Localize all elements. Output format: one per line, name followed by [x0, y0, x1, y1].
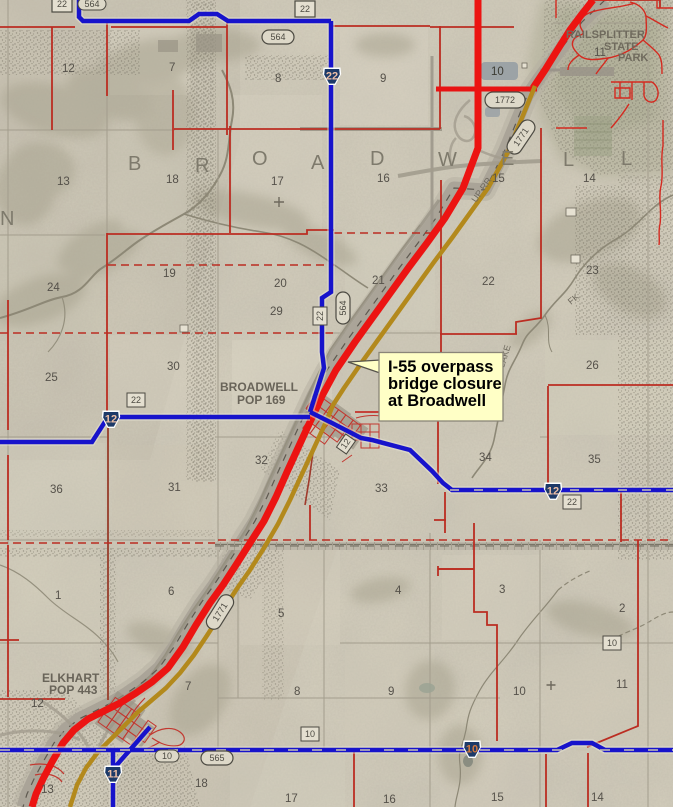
svg-text:4: 4 — [395, 585, 402, 597]
svg-text:19: 19 — [163, 268, 176, 280]
svg-text:23: 23 — [586, 265, 599, 277]
svg-text:36: 36 — [50, 484, 63, 496]
svg-text:11: 11 — [616, 679, 628, 691]
svg-text:22: 22 — [567, 497, 577, 507]
svg-text:17: 17 — [285, 793, 298, 805]
svg-text:RAILSPLITTER: RAILSPLITTER — [566, 29, 645, 41]
svg-text:B: B — [128, 153, 141, 175]
svg-text:17: 17 — [271, 176, 284, 188]
svg-text:16: 16 — [383, 794, 396, 806]
svg-text:564: 564 — [270, 32, 285, 42]
svg-text:13: 13 — [57, 176, 70, 188]
svg-text:18: 18 — [195, 778, 208, 790]
svg-text:10: 10 — [305, 729, 315, 739]
svg-text:PARK: PARK — [618, 52, 648, 64]
svg-text:7: 7 — [185, 681, 191, 693]
svg-text:14: 14 — [591, 792, 604, 804]
svg-text:3: 3 — [499, 584, 505, 596]
svg-text:13: 13 — [41, 784, 54, 796]
svg-text:10: 10 — [466, 744, 478, 756]
svg-text:8: 8 — [294, 686, 300, 698]
svg-text:18: 18 — [166, 174, 179, 186]
svg-text:9: 9 — [388, 686, 394, 698]
svg-text:564: 564 — [84, 0, 99, 9]
svg-text:8: 8 — [275, 73, 281, 85]
svg-text:564: 564 — [338, 300, 348, 315]
svg-text:35: 35 — [588, 454, 601, 466]
svg-text:W: W — [438, 149, 457, 171]
svg-text:10: 10 — [491, 66, 504, 78]
svg-text:I-55 overpass: I-55 overpass — [388, 358, 493, 376]
svg-text:R: R — [195, 155, 209, 177]
svg-text:12: 12 — [62, 63, 75, 75]
svg-text:29: 29 — [270, 306, 283, 318]
svg-text:15: 15 — [492, 173, 505, 185]
svg-text:30: 30 — [167, 361, 180, 373]
svg-text:O: O — [252, 148, 268, 170]
svg-text:L: L — [621, 148, 632, 170]
svg-text:1772: 1772 — [495, 95, 515, 105]
svg-text:21: 21 — [372, 275, 385, 287]
svg-text:22: 22 — [131, 395, 141, 405]
svg-text:25: 25 — [45, 372, 58, 384]
svg-text:12: 12 — [547, 486, 559, 498]
svg-text:22: 22 — [482, 276, 495, 288]
svg-text:11: 11 — [107, 769, 119, 781]
svg-text:22: 22 — [326, 71, 338, 83]
svg-text:12: 12 — [31, 698, 44, 710]
svg-text:10: 10 — [162, 751, 172, 761]
svg-text:POP 169: POP 169 — [237, 393, 286, 407]
svg-text:10: 10 — [607, 638, 617, 648]
svg-text:34: 34 — [479, 452, 492, 464]
svg-text:565: 565 — [209, 753, 224, 763]
svg-text:22: 22 — [315, 311, 325, 321]
svg-text:22: 22 — [300, 4, 310, 14]
svg-text:E: E — [501, 148, 514, 170]
svg-text:5: 5 — [278, 608, 284, 620]
svg-text:14: 14 — [583, 173, 596, 185]
svg-text:2: 2 — [619, 603, 625, 615]
svg-text:31: 31 — [168, 482, 181, 494]
svg-text:N: N — [0, 208, 14, 230]
svg-text:6: 6 — [168, 586, 174, 598]
svg-text:33: 33 — [375, 483, 388, 495]
svg-text:32: 32 — [255, 455, 268, 467]
svg-text:16: 16 — [377, 173, 390, 185]
svg-text:15: 15 — [491, 792, 504, 804]
svg-text:at Broadwell: at Broadwell — [388, 392, 486, 410]
svg-text:26: 26 — [586, 360, 599, 372]
svg-text:10: 10 — [513, 686, 526, 698]
svg-text:22: 22 — [57, 0, 67, 9]
svg-text:12: 12 — [105, 414, 117, 426]
svg-text:BROADWELL: BROADWELL — [220, 380, 298, 394]
svg-text:24: 24 — [47, 282, 60, 294]
svg-text:9: 9 — [380, 73, 386, 85]
svg-text:20: 20 — [274, 278, 287, 290]
svg-text:D: D — [370, 148, 384, 170]
svg-text:A: A — [311, 152, 325, 174]
svg-text:7: 7 — [169, 62, 175, 74]
svg-text:POP 443: POP 443 — [49, 683, 98, 697]
svg-text:bridge closure: bridge closure — [388, 375, 502, 393]
svg-text:L: L — [563, 149, 574, 171]
svg-text:1: 1 — [55, 590, 61, 602]
